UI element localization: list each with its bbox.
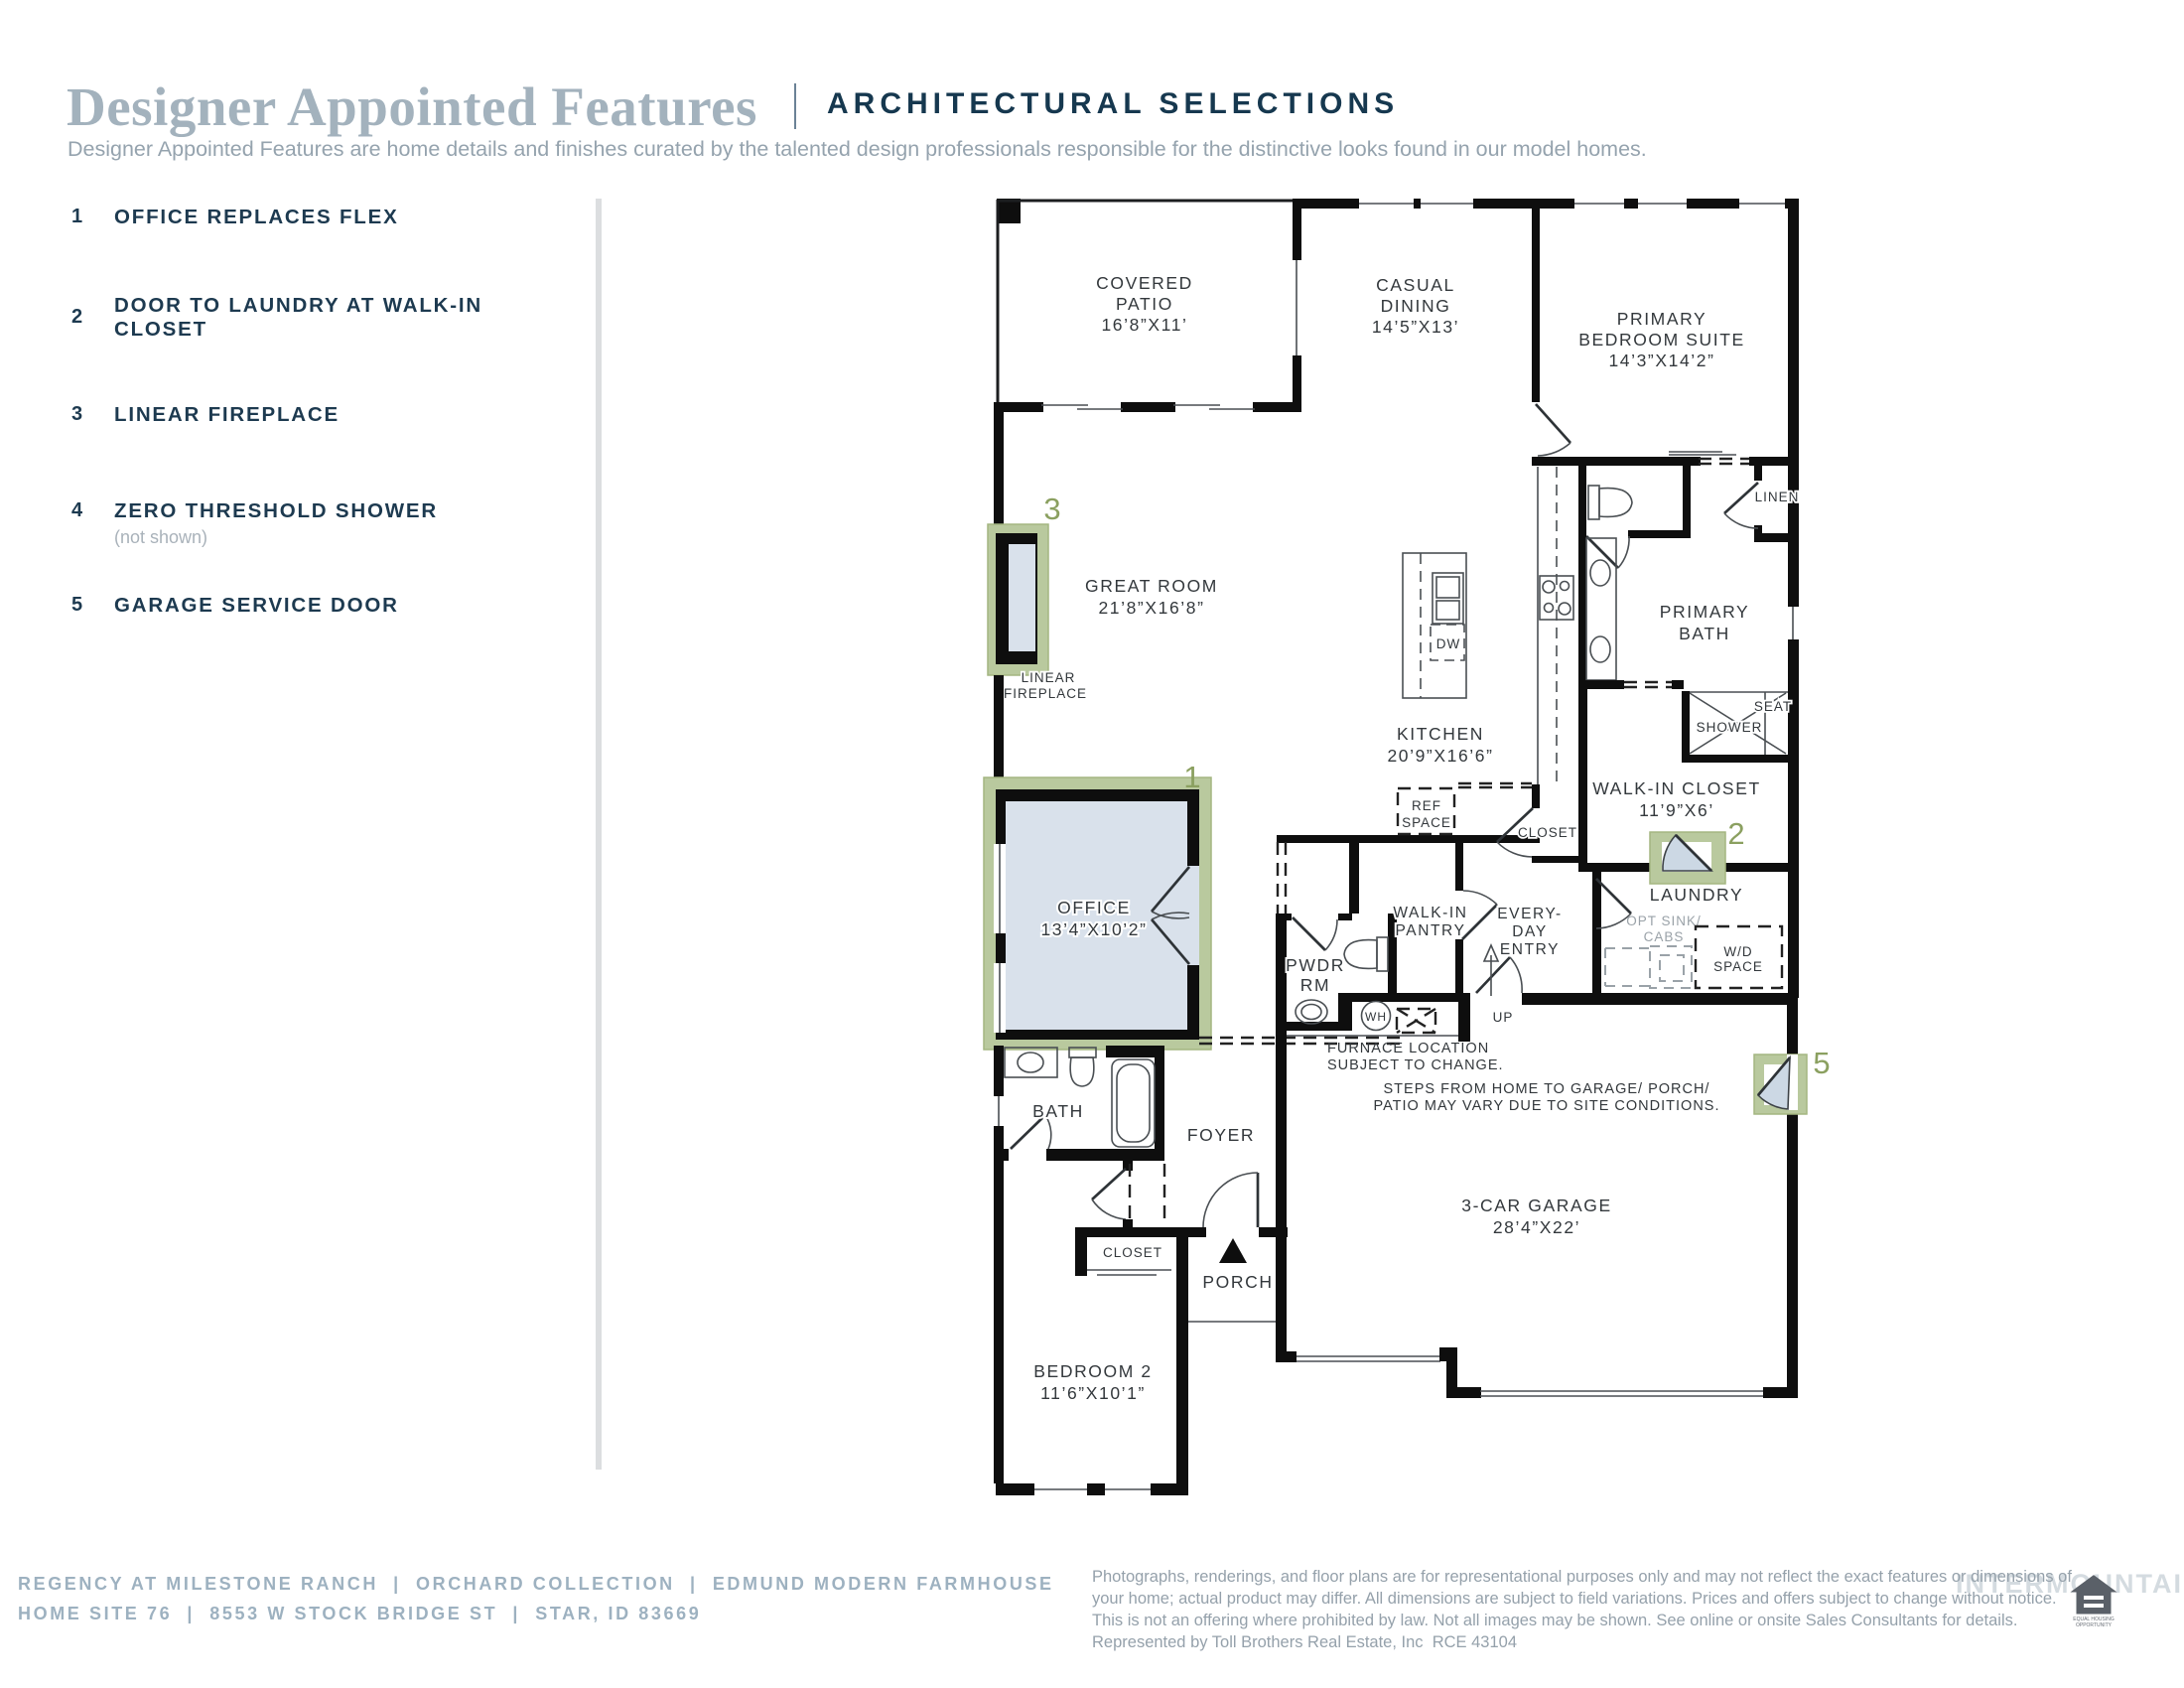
svg-text:14’3”X14’2”: 14’3”X14’2”: [1608, 351, 1714, 370]
svg-text:SEAT: SEAT: [1754, 699, 1792, 714]
svg-text:FIREPLACE: FIREPLACE: [1004, 686, 1087, 701]
svg-text:REF: REF: [1412, 798, 1441, 813]
svg-text:CLOSET: CLOSET: [1518, 825, 1577, 840]
svg-text:BATH: BATH: [1679, 624, 1730, 643]
svg-text:PRIMARY: PRIMARY: [1660, 602, 1750, 622]
svg-text:WALK-IN: WALK-IN: [1393, 905, 1467, 921]
svg-text:COVERED: COVERED: [1096, 273, 1193, 293]
svg-text:16’8”X11’: 16’8”X11’: [1101, 315, 1187, 335]
svg-text:2: 2: [1727, 816, 1744, 851]
svg-text:14’5”X13’: 14’5”X13’: [1372, 317, 1459, 337]
svg-text:GREAT ROOM: GREAT ROOM: [1085, 576, 1218, 596]
svg-text:CLOSET: CLOSET: [1103, 1245, 1162, 1260]
svg-text:ENTRY: ENTRY: [1500, 941, 1560, 958]
svg-text:SPACE: SPACE: [1402, 815, 1451, 830]
svg-text:PWDR: PWDR: [1286, 955, 1345, 975]
svg-text:EVERY-: EVERY-: [1497, 906, 1563, 922]
svg-text:WALK-IN CLOSET: WALK-IN CLOSET: [1592, 778, 1761, 798]
svg-text:PATIO: PATIO: [1116, 294, 1173, 314]
svg-text:PANTRY: PANTRY: [1395, 922, 1465, 939]
svg-text:SPACE: SPACE: [1713, 959, 1763, 974]
svg-text:SHOWER: SHOWER: [1697, 720, 1763, 735]
svg-text:PATIO MAY VARY DUE TO SITE CON: PATIO MAY VARY DUE TO SITE CONDITIONS.: [1373, 1098, 1719, 1114]
svg-text:UP: UP: [1493, 1010, 1514, 1025]
svg-text:DINING: DINING: [1381, 296, 1451, 316]
svg-text:OFFICE: OFFICE: [1057, 898, 1131, 917]
svg-text:CABS: CABS: [1644, 929, 1685, 944]
svg-text:BEDROOM SUITE: BEDROOM SUITE: [1578, 330, 1745, 350]
svg-text:WH: WH: [1365, 1010, 1387, 1024]
svg-text:DW: DW: [1436, 636, 1461, 651]
svg-text:BATH: BATH: [1032, 1101, 1084, 1121]
svg-text:11’6”X10’1”: 11’6”X10’1”: [1040, 1383, 1146, 1403]
svg-text:21’8”X16’8”: 21’8”X16’8”: [1098, 598, 1204, 618]
svg-text:KITCHEN: KITCHEN: [1397, 724, 1484, 744]
svg-text:RM: RM: [1300, 975, 1330, 995]
svg-text:28’4”X22’: 28’4”X22’: [1493, 1217, 1580, 1237]
svg-text:LAUNDRY: LAUNDRY: [1650, 885, 1744, 905]
svg-text:FURNACE LOCATION: FURNACE LOCATION: [1327, 1041, 1489, 1056]
svg-text:DAY: DAY: [1512, 923, 1548, 940]
svg-text:BEDROOM 2: BEDROOM 2: [1033, 1361, 1152, 1381]
svg-text:3: 3: [1043, 492, 1060, 526]
svg-text:1: 1: [1183, 760, 1200, 794]
svg-text:5: 5: [1813, 1046, 1830, 1080]
svg-text:3-CAR GARAGE: 3-CAR GARAGE: [1461, 1196, 1611, 1215]
svg-text:OPT SINK/: OPT SINK/: [1626, 914, 1702, 928]
svg-text:FOYER: FOYER: [1187, 1125, 1255, 1145]
svg-text:11’9”X6’: 11’9”X6’: [1639, 800, 1714, 820]
svg-text:20’9”X16’6”: 20’9”X16’6”: [1387, 746, 1493, 766]
svg-text:PRIMARY: PRIMARY: [1617, 309, 1707, 329]
svg-text:LINEN: LINEN: [1755, 490, 1800, 504]
svg-text:CASUAL: CASUAL: [1376, 275, 1455, 295]
svg-text:LINEAR: LINEAR: [1022, 670, 1076, 685]
svg-text:W/D: W/D: [1723, 944, 1752, 959]
svg-text:PORCH: PORCH: [1202, 1272, 1273, 1292]
svg-text:OPPORTUNITY: OPPORTUNITY: [2076, 1622, 2113, 1628]
svg-text:13’4”X10’2”: 13’4”X10’2”: [1040, 919, 1147, 939]
svg-text:SUBJECT TO CHANGE.: SUBJECT TO CHANGE.: [1327, 1057, 1504, 1073]
svg-text:STEPS FROM HOME TO GARAGE/ POR: STEPS FROM HOME TO GARAGE/ PORCH/: [1384, 1081, 1710, 1097]
